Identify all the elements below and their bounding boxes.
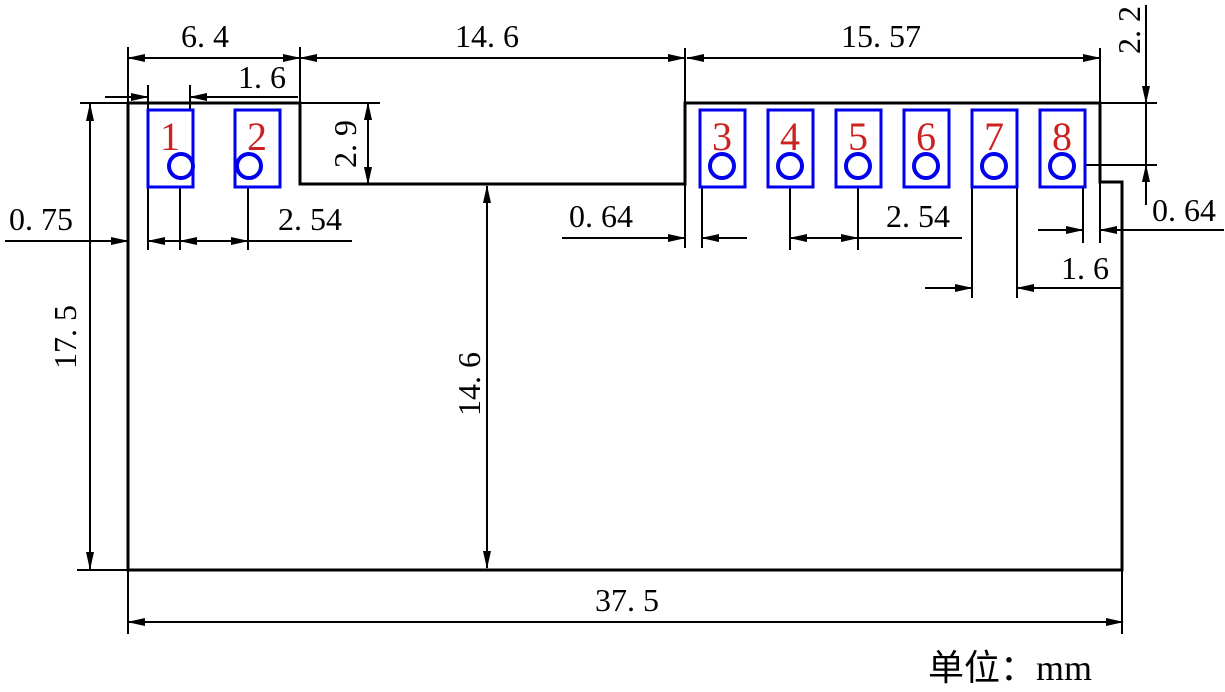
- pads-layer: 12345678: [148, 110, 1085, 187]
- pad-8: 8: [1040, 110, 1085, 187]
- pad-hole-8: [1050, 154, 1074, 178]
- dim-label-1-6-right: 1. 6: [1061, 250, 1109, 286]
- drawing-svg: 6. 4 1. 6 14. 6 15. 57 2. 2 2. 9 0. 75 2…: [0, 0, 1225, 692]
- pad-3: 3: [700, 110, 745, 187]
- pad-2: 2: [235, 110, 280, 187]
- dimension-lines: [5, 5, 1224, 622]
- units-note: 单位：mm: [928, 648, 1092, 688]
- pad-7: 7: [972, 110, 1017, 187]
- dim-label-2-2: 2. 2: [1111, 6, 1147, 54]
- dim-label-1-6-left: 1. 6: [238, 59, 286, 95]
- pad-hole-4: [778, 154, 802, 178]
- dim-label-14-6-top: 14. 6: [455, 18, 519, 54]
- dim-label-0-64-right: 0. 64: [1152, 192, 1216, 228]
- pad-hole-6: [914, 154, 938, 178]
- pad-hole-7: [982, 154, 1006, 178]
- dim-label-0-64-mid: 0. 64: [569, 198, 633, 234]
- dim-label-0-75: 0. 75: [9, 201, 73, 237]
- dimension-drawing-canvas: 6. 4 1. 6 14. 6 15. 57 2. 2 2. 9 0. 75 2…: [0, 0, 1225, 692]
- dim-label-14-6-vertical: 14. 6: [451, 352, 487, 416]
- pad-hole-5: [846, 154, 870, 178]
- dim-label-15-57: 15. 57: [841, 18, 921, 54]
- pad-hole-1: [169, 154, 193, 178]
- pad-hole-3: [710, 154, 734, 178]
- dim-label-17-5: 17. 5: [47, 305, 83, 369]
- pad-1: 1: [148, 110, 193, 187]
- dim-label-6-4: 6. 4: [181, 18, 229, 54]
- pad-4: 4: [768, 110, 813, 187]
- dim-label-2-54-left: 2. 54: [278, 201, 342, 237]
- dim-label-2-54-right: 2. 54: [886, 198, 950, 234]
- dim-label-37-5: 37. 5: [595, 582, 659, 618]
- pad-6: 6: [904, 110, 949, 187]
- pin-number-1: 1: [160, 114, 180, 159]
- dim-label-2-9: 2. 9: [327, 120, 363, 168]
- pad-hole-2: [237, 154, 261, 178]
- pad-5: 5: [836, 110, 881, 187]
